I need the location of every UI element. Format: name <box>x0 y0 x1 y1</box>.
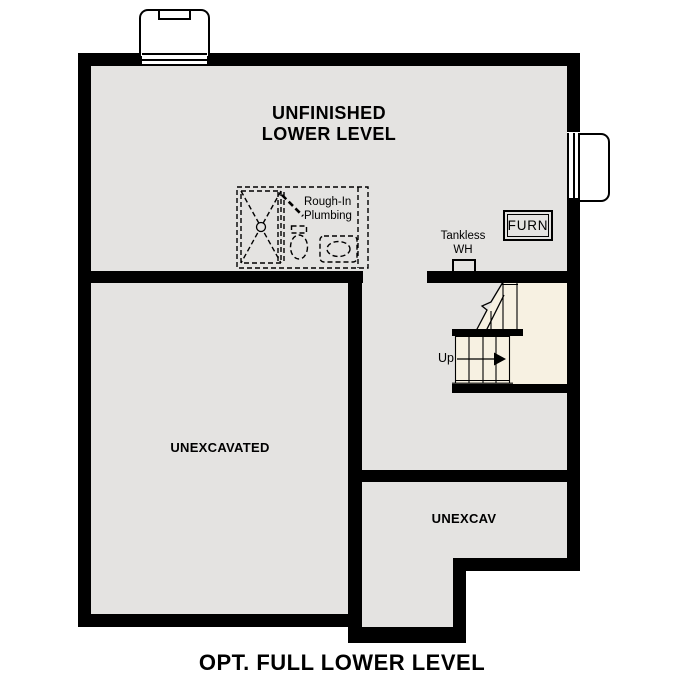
basement-window-right <box>567 133 580 198</box>
center-divider-wall <box>348 271 362 643</box>
unexcavated-room-label: UNEXCAVATED <box>120 440 320 455</box>
main-room-label-line1: UNFINISHED <box>229 103 429 124</box>
unexcav-bottom-right-wall <box>453 558 580 571</box>
unexcav-room-label: UNEXCAV <box>364 511 564 526</box>
mid-wall-stair <box>427 271 567 283</box>
tankless-water-heater-box <box>452 259 476 273</box>
egress-window-well-right <box>580 133 610 202</box>
stair-hall-floor <box>362 283 567 470</box>
furnace-box: FURN <box>503 210 553 241</box>
unexcav-room-tab-floor <box>362 482 453 630</box>
plan-title: OPT. FULL LOWER LEVEL <box>142 650 542 676</box>
mid-wall-left <box>78 271 363 283</box>
main-room-label: UNFINISHED LOWER LEVEL <box>229 103 429 145</box>
floor-plan: FURN UNFINISHED LOWER LEVEL Rough-In Plu… <box>0 0 687 687</box>
tankless-wh-label: Tankless WH <box>428 230 498 257</box>
unexcavated-bottom-wall <box>78 614 362 627</box>
hall-unexcav-wall <box>348 470 578 482</box>
top-wall-right-segment <box>207 53 580 66</box>
doorway-opening-floor <box>362 271 427 283</box>
rough-in-plumbing-label: Rough-In Plumbing <box>304 196 352 223</box>
right-wall-upper-segment <box>567 53 580 132</box>
stairs-up-label: Up <box>426 351 454 365</box>
tab-bottom-wall <box>348 627 466 643</box>
main-room-label-line2: LOWER LEVEL <box>229 124 429 145</box>
left-wall <box>78 53 91 627</box>
window-well-ladder-icon <box>158 9 191 20</box>
right-wall-lower-segment <box>567 197 580 571</box>
basement-window-top <box>142 53 207 66</box>
furnace-label: FURN <box>507 214 549 237</box>
